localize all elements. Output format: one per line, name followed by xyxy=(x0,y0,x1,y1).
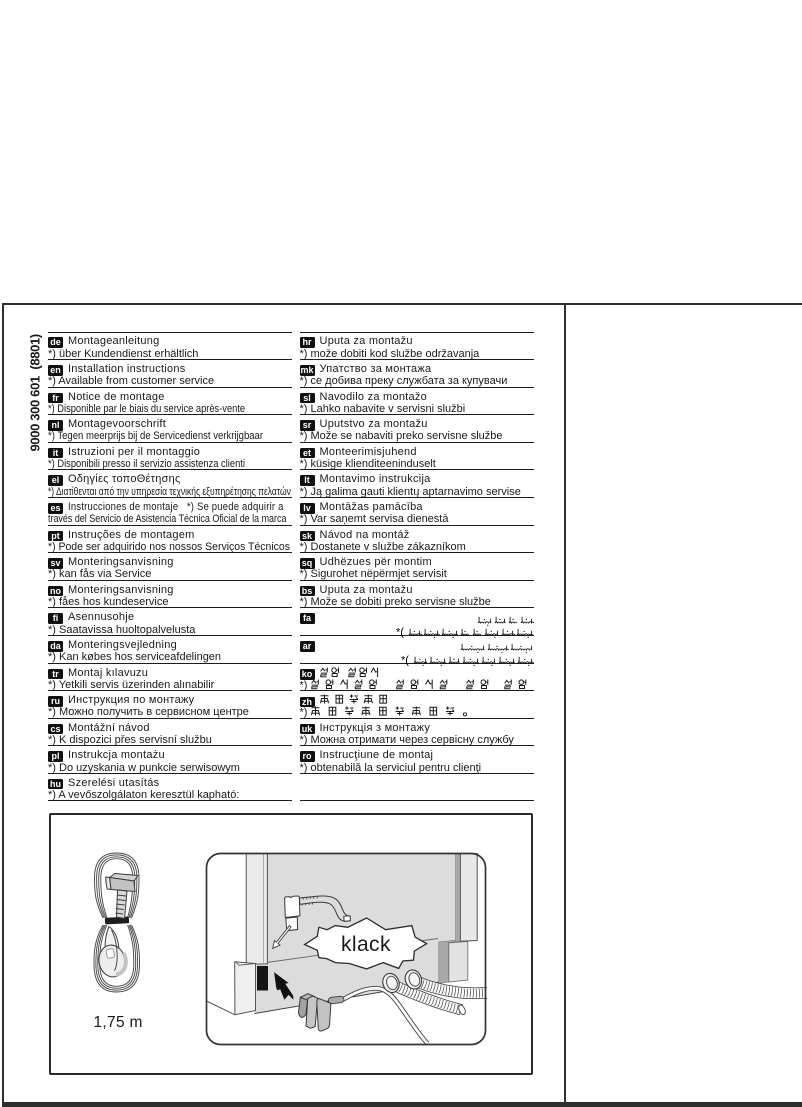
svg-text:*(: *( xyxy=(401,654,409,666)
svg-text:*(: *( xyxy=(396,627,404,639)
